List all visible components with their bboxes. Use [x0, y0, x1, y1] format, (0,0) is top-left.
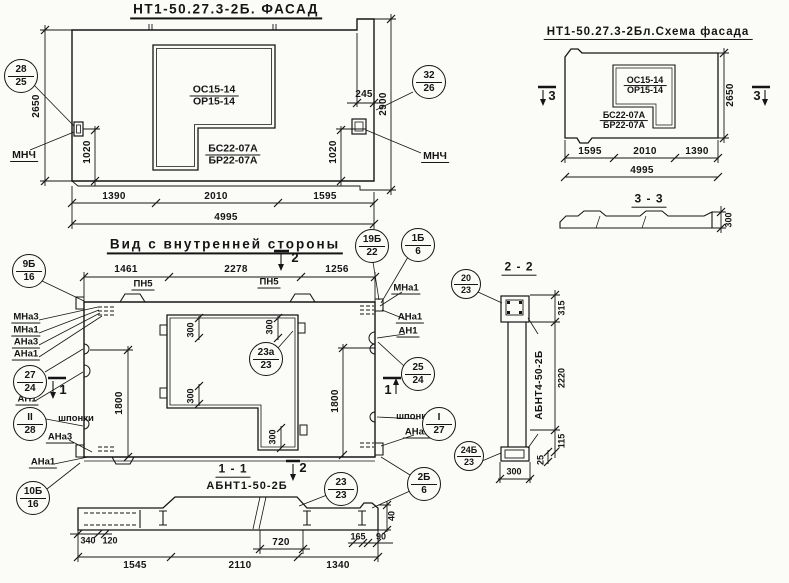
dim-schema-total: 4995 [630, 166, 653, 177]
window-frame-mark: ОР15-14 [193, 97, 235, 108]
ana1-label-lower: АНа1 [29, 458, 57, 469]
callout-32-26-bottom: 26 [416, 83, 443, 95]
dim-frame-300-bl: 300 [186, 388, 195, 403]
callout-I-27-bottom: 27 [426, 425, 453, 437]
callout-II-28-bottom: 28 [17, 425, 44, 437]
dim-s22-2220: 2220 [557, 368, 566, 388]
callout-10b-16: 10Б 16 [16, 481, 50, 515]
dim-s11-2110: 2110 [229, 561, 252, 572]
callout-2b-6: 2Б 6 [407, 467, 441, 501]
callout-25-24-bottom: 24 [405, 375, 432, 387]
dim-facade-height-right: 2900 [379, 92, 390, 115]
callout-23a-23: 23а 23 [249, 342, 283, 376]
shponki-label-left: шпонки [58, 414, 94, 424]
callout-27-24-bottom: 24 [17, 383, 44, 395]
dim-s22-315: 315 [557, 300, 566, 315]
schema-title: НТ1-50.27.3-2Бл.Схема фасада [544, 26, 753, 40]
callout-25-24: 25 24 [401, 357, 435, 391]
dim-s22-25: 25 [536, 455, 545, 465]
section-3-3-title: 3 - 3 [631, 193, 666, 208]
callout-23a-23-top: 23а [253, 347, 280, 360]
callout-9b-16-bottom: 16 [16, 272, 43, 284]
dim-facade-anchor-left: 1020 [83, 140, 94, 163]
dim-facade-w2: 2010 [204, 192, 227, 203]
cut-2-bottom: 2 [299, 461, 306, 475]
mnch-label-right: МНЧ [421, 151, 449, 163]
dim-schema-height: 2650 [726, 83, 737, 106]
schema-window-frame: ОР15-14 [627, 87, 663, 96]
dim-frame-300-br: 300 [268, 429, 277, 444]
facade-title: НТ1-50.27.3-2Б. ФАСАД [130, 2, 322, 19]
callout-28-25-bottom: 25 [8, 77, 35, 89]
an1-label-right: АН1 [396, 327, 419, 338]
callout-II-28: II 28 [13, 407, 47, 441]
dim-s11-40: 40 [387, 511, 396, 521]
callout-19b-22-top: 19Б [359, 234, 386, 247]
callout-9b-16-top: 9Б [16, 259, 43, 272]
dim-inner-t3: 1256 [325, 265, 348, 276]
callout-23-23: 23 23 [324, 472, 358, 506]
callout-24b-23: 24Б 23 [454, 441, 484, 471]
callout-25-24-top: 25 [405, 362, 432, 375]
callout-32-26: 32 26 [412, 65, 446, 99]
dim-facade-rib: 245 [355, 90, 373, 101]
dim-inner-t1: 1461 [114, 265, 137, 276]
schema-block-bottom: БР22-07А [603, 122, 645, 131]
dim-facade-anchor-right: 1020 [329, 140, 340, 163]
dim-schema-w2: 2010 [633, 147, 656, 158]
dim-s11-165: 165 [350, 532, 365, 541]
callout-10b-16-top: 10Б [20, 486, 47, 499]
dim-s11-340: 340 [80, 536, 95, 545]
pn5-label-right: ПН5 [258, 278, 281, 289]
schema-window-mark: ОС15-14 ОР15-14 [624, 76, 667, 96]
callout-23-23-bottom: 23 [328, 490, 355, 502]
block-bottom-mark: БР22-07А [209, 156, 258, 167]
mna3-label: МНа3 [11, 313, 40, 324]
callout-2b-6-bottom: 6 [411, 485, 438, 497]
cut-3-left: 3 [548, 89, 555, 103]
dim-s11-1545: 1545 [123, 561, 146, 572]
cut-1-right: 1 [384, 383, 391, 397]
section-2-2-mark: АБНТ4-50-2Б [535, 350, 546, 419]
ana3-label-left: АНа3 [12, 338, 40, 349]
dim-s11-120: 120 [102, 536, 117, 545]
dim-schema-w3: 1390 [685, 147, 708, 158]
dim-s11-90: 90 [376, 532, 386, 541]
dim-s11-1340: 1340 [326, 561, 349, 572]
dim-facade-total: 4995 [214, 213, 237, 224]
facade-window-mark: ОС15-14 ОР15-14 [190, 84, 239, 107]
dim-facade-w1: 1390 [102, 192, 125, 203]
callout-20-23-bottom: 23 [454, 285, 478, 296]
callout-10b-16-bottom: 16 [20, 499, 47, 511]
callout-II-28-top: II [17, 412, 44, 425]
dim-inner-height-right: 1800 [331, 389, 342, 412]
cut-1-left: 1 [59, 383, 66, 397]
dim-s11-720: 720 [272, 538, 290, 549]
callout-1b-6-bottom: 6 [405, 246, 432, 258]
cut-3-right: 3 [753, 89, 760, 103]
callout-23a-23-bottom: 23 [253, 360, 280, 372]
callout-20-23-top: 20 [454, 273, 478, 285]
schema-block-mark: БС22-07А БР22-07А [600, 111, 648, 131]
ana3-label-lower: АНа3 [46, 433, 74, 444]
section-2-2-title: 2 - 2 [501, 261, 536, 276]
callout-2b-6-top: 2Б [411, 472, 438, 485]
ana1-label-right-top: АНа1 [396, 313, 424, 324]
section-1-1-mark: АБНТ1-50-2Б [206, 481, 287, 493]
callout-1b-6: 1Б 6 [401, 228, 435, 262]
section-1-1-title: 1 - 1 [215, 463, 250, 478]
callout-24b-23-bottom: 23 [457, 457, 481, 468]
ana1-label-left: АНа1 [12, 350, 40, 361]
dim-s22-115: 115 [557, 434, 566, 449]
callout-27-24-top: 27 [17, 370, 44, 383]
dim-facade-height-left: 2650 [32, 94, 43, 117]
dim-schema-w1: 1595 [578, 147, 601, 158]
callout-24b-23-top: 24Б [457, 445, 481, 457]
callout-I-27-top: I [426, 412, 453, 425]
callout-1b-6-top: 1Б [405, 233, 432, 246]
callout-9b-16: 9Б 16 [12, 254, 46, 288]
mna1-label-left: МНа1 [11, 326, 40, 337]
callout-28-25-top: 28 [8, 64, 35, 77]
callout-27-24: 27 24 [13, 365, 47, 399]
dim-s22-300: 300 [506, 467, 521, 476]
dim-frame-300-tr: 300 [265, 319, 274, 334]
callout-19b-22-bottom: 22 [359, 247, 386, 259]
mna1-label-top-right: МНа1 [391, 284, 420, 295]
dim-inner-height-left: 1800 [115, 391, 126, 414]
dim-frame-300-tl: 300 [186, 322, 195, 337]
pn5-label-left: ПН5 [132, 280, 155, 291]
cut-2-top: 2 [291, 251, 298, 265]
callout-32-26-top: 32 [416, 70, 443, 83]
mnch-label-left: МНЧ [10, 150, 38, 162]
dim-s33-thickness: 300 [724, 212, 733, 227]
callout-I-27: I 27 [422, 407, 456, 441]
facade-block-mark: БС22-07А БР22-07А [205, 143, 260, 166]
callout-23-23-top: 23 [328, 477, 355, 490]
dim-inner-t2: 2278 [224, 265, 247, 276]
callout-28-25: 28 25 [4, 59, 38, 93]
callout-19b-22: 19Б 22 [355, 229, 389, 263]
callout-20-23: 20 23 [451, 269, 481, 299]
dim-facade-w3: 1595 [313, 192, 336, 203]
inner-view-title: Вид с внутренней стороны [107, 237, 343, 254]
drawing-sheet: НТ1-50.27.3-2Б. ФАСАД ОС15-14 ОР15-14 БС… [0, 0, 789, 583]
